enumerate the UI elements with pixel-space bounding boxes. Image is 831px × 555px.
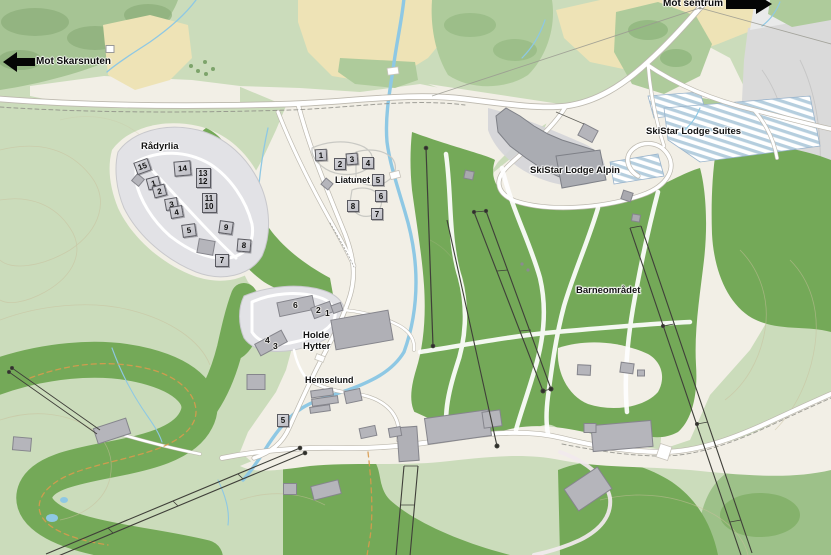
map-label-hemselund: Hemselund: [305, 375, 354, 385]
plot-marker-radyrlia-2: 2: [151, 184, 167, 199]
plot-marker-radyrlia-13-12: 1312: [196, 168, 211, 188]
plot-marker-radyrlia-9: 9: [218, 220, 234, 235]
plot-marker-radyrlia-7: 7: [215, 254, 229, 267]
direction-label-mot-skarsnuten: Mot Skarsnuten: [36, 56, 111, 67]
plot-marker-holde_hytter-2: 2: [316, 305, 321, 315]
map-label-liatunet: Liatunet: [335, 175, 370, 185]
map-label-skistar-lodge-suites: SkiStar Lodge Suites: [646, 127, 741, 138]
plot-marker-liatunet-8: 8: [347, 200, 359, 212]
plot-marker-holde_hytter-1: 1: [325, 308, 330, 318]
plot-marker-liatunet-6: 6: [375, 190, 387, 202]
plot-marker-radyrlia-15: 15: [133, 157, 152, 174]
plot-marker-holde_hytter-3: 3: [273, 341, 278, 351]
map-label-barneomradet: Barneområdet: [576, 286, 640, 297]
map-label-radyrlia: Rådyrlia: [141, 142, 179, 153]
plot-marker-liatunet-2: 2: [334, 158, 346, 170]
plot-marker-liatunet-4: 4: [362, 157, 374, 169]
map-label-holde-hytter: Holde Hytter: [303, 331, 330, 353]
plot-marker-hemselund-5: 5: [277, 414, 289, 427]
plot-number: 12: [199, 178, 208, 187]
plot-marker-liatunet-5: 5: [372, 174, 384, 186]
map-overlay: Mot SkarsnutenMot sentrumRådyrliaLiatune…: [0, 0, 831, 555]
plot-marker-liatunet-1: 1: [315, 149, 328, 162]
map-label-skistar-lodge-alpin: SkiStar Lodge Alpin: [530, 166, 620, 177]
plot-marker-liatunet-3: 3: [345, 152, 358, 165]
plot-marker-radyrlia-5: 5: [181, 223, 197, 238]
plot-marker-radyrlia-14: 14: [173, 160, 191, 176]
plot-marker-liatunet-7: 7: [371, 208, 383, 220]
plot-number: 10: [205, 203, 214, 212]
plot-marker-radyrlia-4: 4: [169, 205, 184, 219]
plot-marker-radyrlia-11-10: 1110: [202, 193, 217, 213]
plot-marker-holde_hytter-6: 6: [293, 300, 298, 310]
plot-marker-holde_hytter-4: 4: [265, 335, 270, 345]
arrow-right-icon: [726, 0, 772, 19]
ski-resort-map: Mot SkarsnutenMot sentrumRådyrliaLiatune…: [0, 0, 831, 555]
plot-marker-radyrlia-8: 8: [236, 238, 251, 252]
direction-label-mot-sentrum: Mot sentrum: [663, 0, 723, 9]
arrow-left-icon: [3, 51, 35, 78]
